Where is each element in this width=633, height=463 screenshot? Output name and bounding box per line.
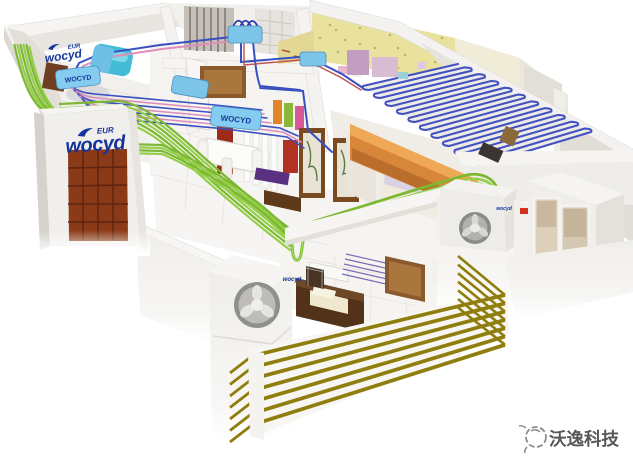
svg-text:wocyd: wocyd [283, 277, 302, 283]
svg-text:wocyd: wocyd [496, 206, 513, 212]
svg-text:沃逸科技: 沃逸科技 [549, 429, 619, 449]
svg-text:EUR: EUR [97, 126, 115, 136]
svg-text:wocyd: wocyd [65, 132, 127, 158]
